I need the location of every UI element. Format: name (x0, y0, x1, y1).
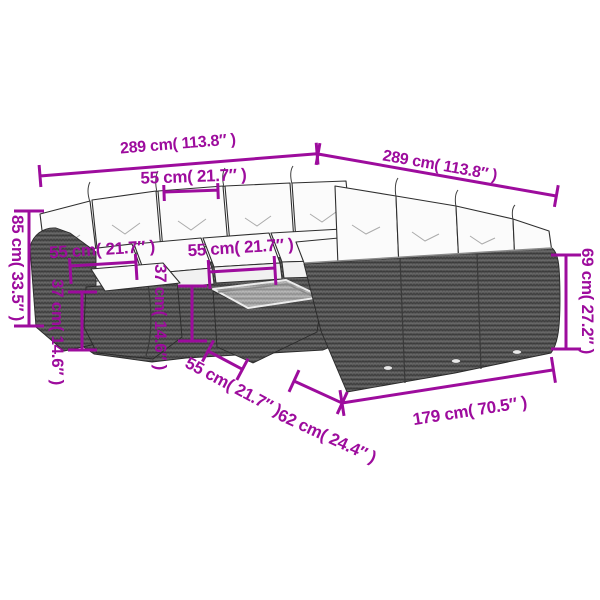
cushion-seam-spike (395, 178, 398, 197)
back-cushion-6 (335, 186, 399, 268)
seat-cushion-front-3 (214, 263, 282, 283)
cushion-seam-spike (291, 166, 293, 184)
right-back-panel (304, 248, 560, 392)
dim-label-back-height: 69 cm( 27.2″ ) (578, 248, 597, 354)
panel-foot (384, 366, 393, 370)
dim-label-seat-height-left: 37 cm( 14.6″ ) (48, 279, 67, 385)
cushion-seam-spike (512, 205, 515, 220)
panel-foot (452, 359, 461, 363)
dim-label-total-width-right: 289 cm( 113.8″ ) (381, 147, 498, 184)
cushion-seam-spike (88, 182, 90, 202)
sofa-illustration (30, 166, 560, 392)
dim-label-table-width: 62 cm( 24.4″ ) (275, 406, 379, 467)
dim-label-total-height: 85 cm( 33.5″ ) (8, 215, 27, 321)
sofa-dimension-drawing: 289 cm( 113.8″ ) 289 cm( 113.8″ ) 55 cm(… (0, 0, 600, 600)
dimension-diagram: 289 cm( 113.8″ ) 289 cm( 113.8″ ) 55 cm(… (0, 0, 600, 600)
dim-label-seat-width-top: 55 cm( 21.7″ ) (140, 165, 247, 188)
dimension-line (289, 370, 347, 414)
dim-label-seat-height-center: 37 cm( 14.6″ ) (151, 264, 170, 370)
panel-foot (513, 350, 522, 354)
dim-label-total-width-left: 289 cm( 113.8″ ) (119, 131, 236, 157)
dim-label-sofa-depth: 179 cm( 70.5″ ) (411, 393, 528, 430)
cushion-seam-spike (455, 190, 458, 207)
